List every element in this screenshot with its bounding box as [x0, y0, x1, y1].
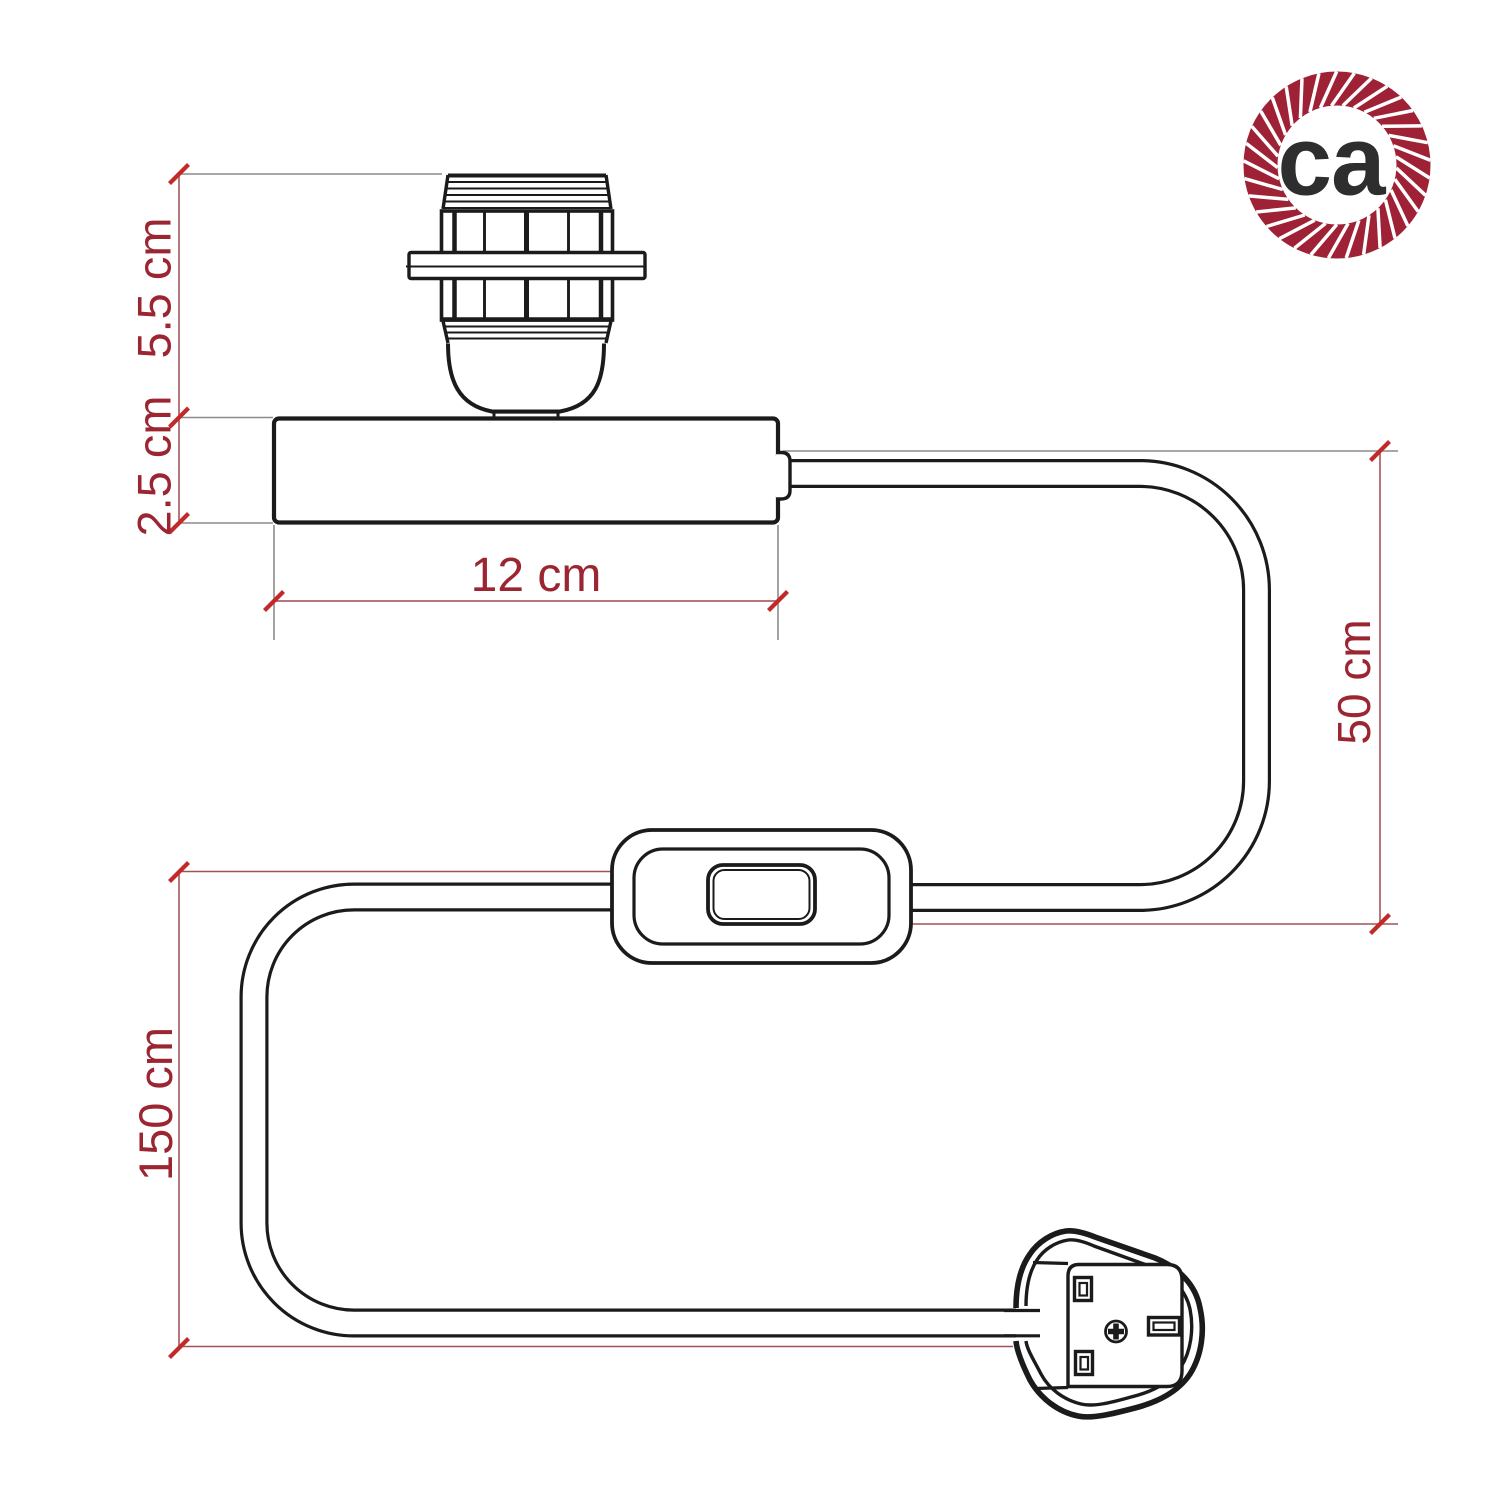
- svg-text:12 cm: 12 cm: [471, 549, 602, 602]
- svg-text:ca: ca: [1277, 106, 1387, 216]
- svg-text:150 cm: 150 cm: [129, 1027, 182, 1181]
- svg-text:5.5 cm: 5.5 cm: [128, 217, 181, 358]
- svg-text:50 cm: 50 cm: [1328, 619, 1380, 744]
- svg-text:2.5 cm: 2.5 cm: [128, 395, 181, 536]
